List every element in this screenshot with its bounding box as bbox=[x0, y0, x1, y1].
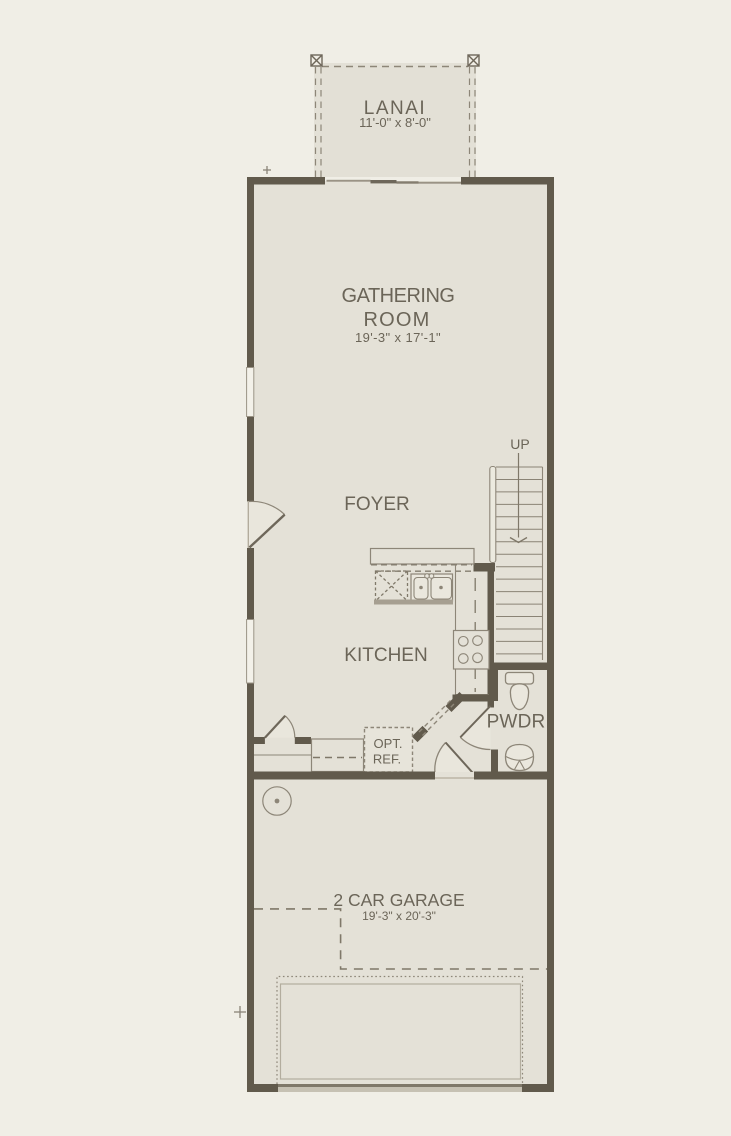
svg-text:19'-3" x 17'-1": 19'-3" x 17'-1" bbox=[355, 330, 441, 345]
svg-text:KITCHEN: KITCHEN bbox=[344, 645, 427, 666]
svg-text:11'-0" x 8'-0": 11'-0" x 8'-0" bbox=[359, 115, 431, 130]
svg-text:PWDR: PWDR bbox=[487, 712, 546, 733]
svg-text:ROOM: ROOM bbox=[363, 309, 430, 331]
svg-text:UP: UP bbox=[510, 436, 529, 452]
svg-text:GATHERING: GATHERING bbox=[342, 285, 455, 307]
svg-text:REF.: REF. bbox=[373, 752, 401, 767]
svg-text:19'-3" x 20'-3": 19'-3" x 20'-3" bbox=[362, 909, 436, 923]
svg-text:OPT.: OPT. bbox=[374, 736, 403, 751]
svg-text:FOYER: FOYER bbox=[344, 494, 409, 515]
svg-text:2 CAR GARAGE: 2 CAR GARAGE bbox=[333, 890, 464, 910]
